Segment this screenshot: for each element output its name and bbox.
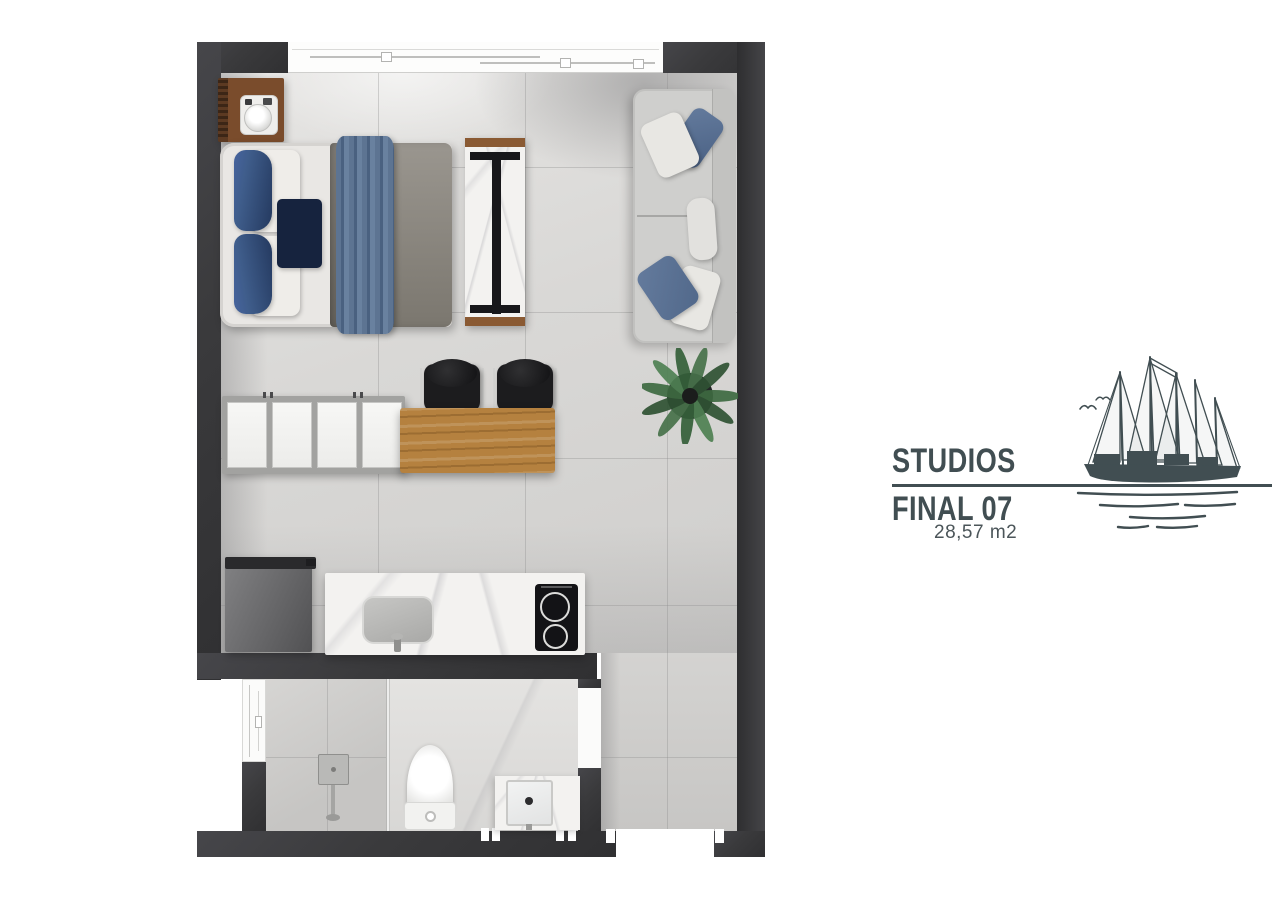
brand-title-line1-text: STUDIOS bbox=[892, 444, 1016, 478]
tv-bracket-bar bbox=[470, 305, 520, 313]
window-handle bbox=[560, 58, 571, 68]
cooktop-controls bbox=[541, 586, 572, 588]
refrigerator bbox=[225, 557, 312, 652]
chair-backrest bbox=[427, 359, 477, 387]
tv-panel bbox=[465, 138, 525, 326]
floor-entry-hall bbox=[601, 653, 737, 831]
wall-right bbox=[737, 42, 765, 857]
wardrobe bbox=[222, 396, 405, 474]
wardrobe-door bbox=[272, 402, 312, 468]
shower-stem bbox=[331, 785, 335, 817]
wall-bathroom-top bbox=[197, 653, 597, 679]
bed-cushion-navy bbox=[277, 199, 322, 268]
floorplan-page: STUDIOS FINAL 07 28,57 m2 bbox=[0, 0, 1280, 904]
vanity-leg-notch bbox=[481, 828, 489, 841]
brand-title-line2-text: FINAL 07 bbox=[892, 492, 1013, 526]
potted-plant bbox=[642, 348, 738, 444]
bath-window-line bbox=[249, 685, 250, 757]
sofa-lumbar-cushion bbox=[686, 197, 718, 261]
entry-door-opening bbox=[616, 829, 714, 859]
refrigerator-handle bbox=[306, 559, 316, 566]
chair-chrome-frame bbox=[555, 368, 557, 412]
tv-panel-wood-cap bbox=[465, 317, 525, 326]
tv-bracket-bar bbox=[470, 152, 520, 160]
bird-icon bbox=[1080, 406, 1096, 409]
shower-glass-partition bbox=[386, 679, 390, 831]
vanity-faucet bbox=[526, 824, 532, 830]
decor-item bbox=[263, 98, 272, 105]
shower-head-dot bbox=[331, 767, 336, 772]
cooktop-burner bbox=[540, 592, 570, 622]
decor-tray bbox=[240, 95, 278, 135]
brand-area-label: 28,57 m2 bbox=[934, 523, 1017, 542]
dining-chair bbox=[424, 364, 480, 412]
window-handle bbox=[381, 52, 392, 62]
window-sill-line bbox=[292, 49, 659, 50]
dining-table bbox=[400, 408, 555, 473]
bed-throw-blanket bbox=[336, 136, 394, 334]
wardrobe-door bbox=[227, 402, 267, 468]
nightstand-louver bbox=[218, 80, 228, 140]
main-window bbox=[288, 42, 663, 73]
bed-pillow-blue bbox=[234, 150, 272, 231]
nightstand bbox=[218, 78, 284, 142]
chair-chrome-frame bbox=[493, 368, 495, 412]
chair-backrest bbox=[500, 359, 550, 387]
wardrobe-hinge bbox=[353, 392, 356, 398]
refrigerator-top bbox=[225, 557, 316, 569]
wardrobe-hinge bbox=[263, 392, 266, 398]
sofa bbox=[633, 89, 736, 343]
brand-title-line1: STUDIOS bbox=[892, 444, 1047, 478]
window-glass-line bbox=[310, 56, 540, 58]
sailboat-illustration bbox=[1070, 352, 1250, 537]
decor-bowl bbox=[244, 104, 272, 132]
window-handle bbox=[633, 59, 644, 69]
entry-door-jamb bbox=[715, 829, 724, 843]
kitchen-counter bbox=[325, 573, 585, 655]
tv-panel-wood-cap bbox=[465, 138, 525, 147]
wardrobe-door bbox=[362, 402, 402, 468]
bathroom-door-opening bbox=[578, 688, 601, 768]
bath-window-handle bbox=[255, 716, 262, 728]
wardrobe-door bbox=[317, 402, 357, 468]
tv-bracket-bar bbox=[492, 152, 501, 314]
vanity-sink bbox=[495, 776, 580, 830]
tile-grout-line bbox=[601, 757, 737, 758]
shower-base bbox=[326, 814, 340, 821]
tile-grout-line bbox=[667, 653, 668, 831]
sink-faucet-base bbox=[391, 633, 403, 640]
chair-chrome-frame bbox=[420, 368, 422, 412]
brand-title-line2: FINAL 07 bbox=[892, 492, 1043, 526]
shower-column bbox=[318, 754, 349, 822]
toilet-flush-button bbox=[425, 811, 436, 822]
wardrobe-hinge bbox=[270, 392, 273, 398]
toilet bbox=[404, 745, 456, 830]
wall-bathroom-right bbox=[578, 768, 601, 831]
wall-bathroom-right-jamb bbox=[578, 679, 601, 688]
bathroom-window bbox=[242, 679, 266, 762]
wall-bathroom-left bbox=[242, 762, 266, 831]
wardrobe-hinge bbox=[360, 392, 363, 398]
bird-icon bbox=[1096, 397, 1110, 400]
cooktop-burner bbox=[543, 624, 568, 649]
wall-bottom-left bbox=[197, 831, 616, 857]
vanity-drain bbox=[525, 797, 533, 805]
cooktop bbox=[535, 584, 578, 651]
chair-chrome-frame bbox=[482, 368, 484, 412]
dining-chair bbox=[497, 364, 553, 412]
entry-door-jamb bbox=[606, 829, 615, 843]
decor-item bbox=[245, 99, 252, 105]
bed-pillow-blue bbox=[234, 234, 272, 314]
